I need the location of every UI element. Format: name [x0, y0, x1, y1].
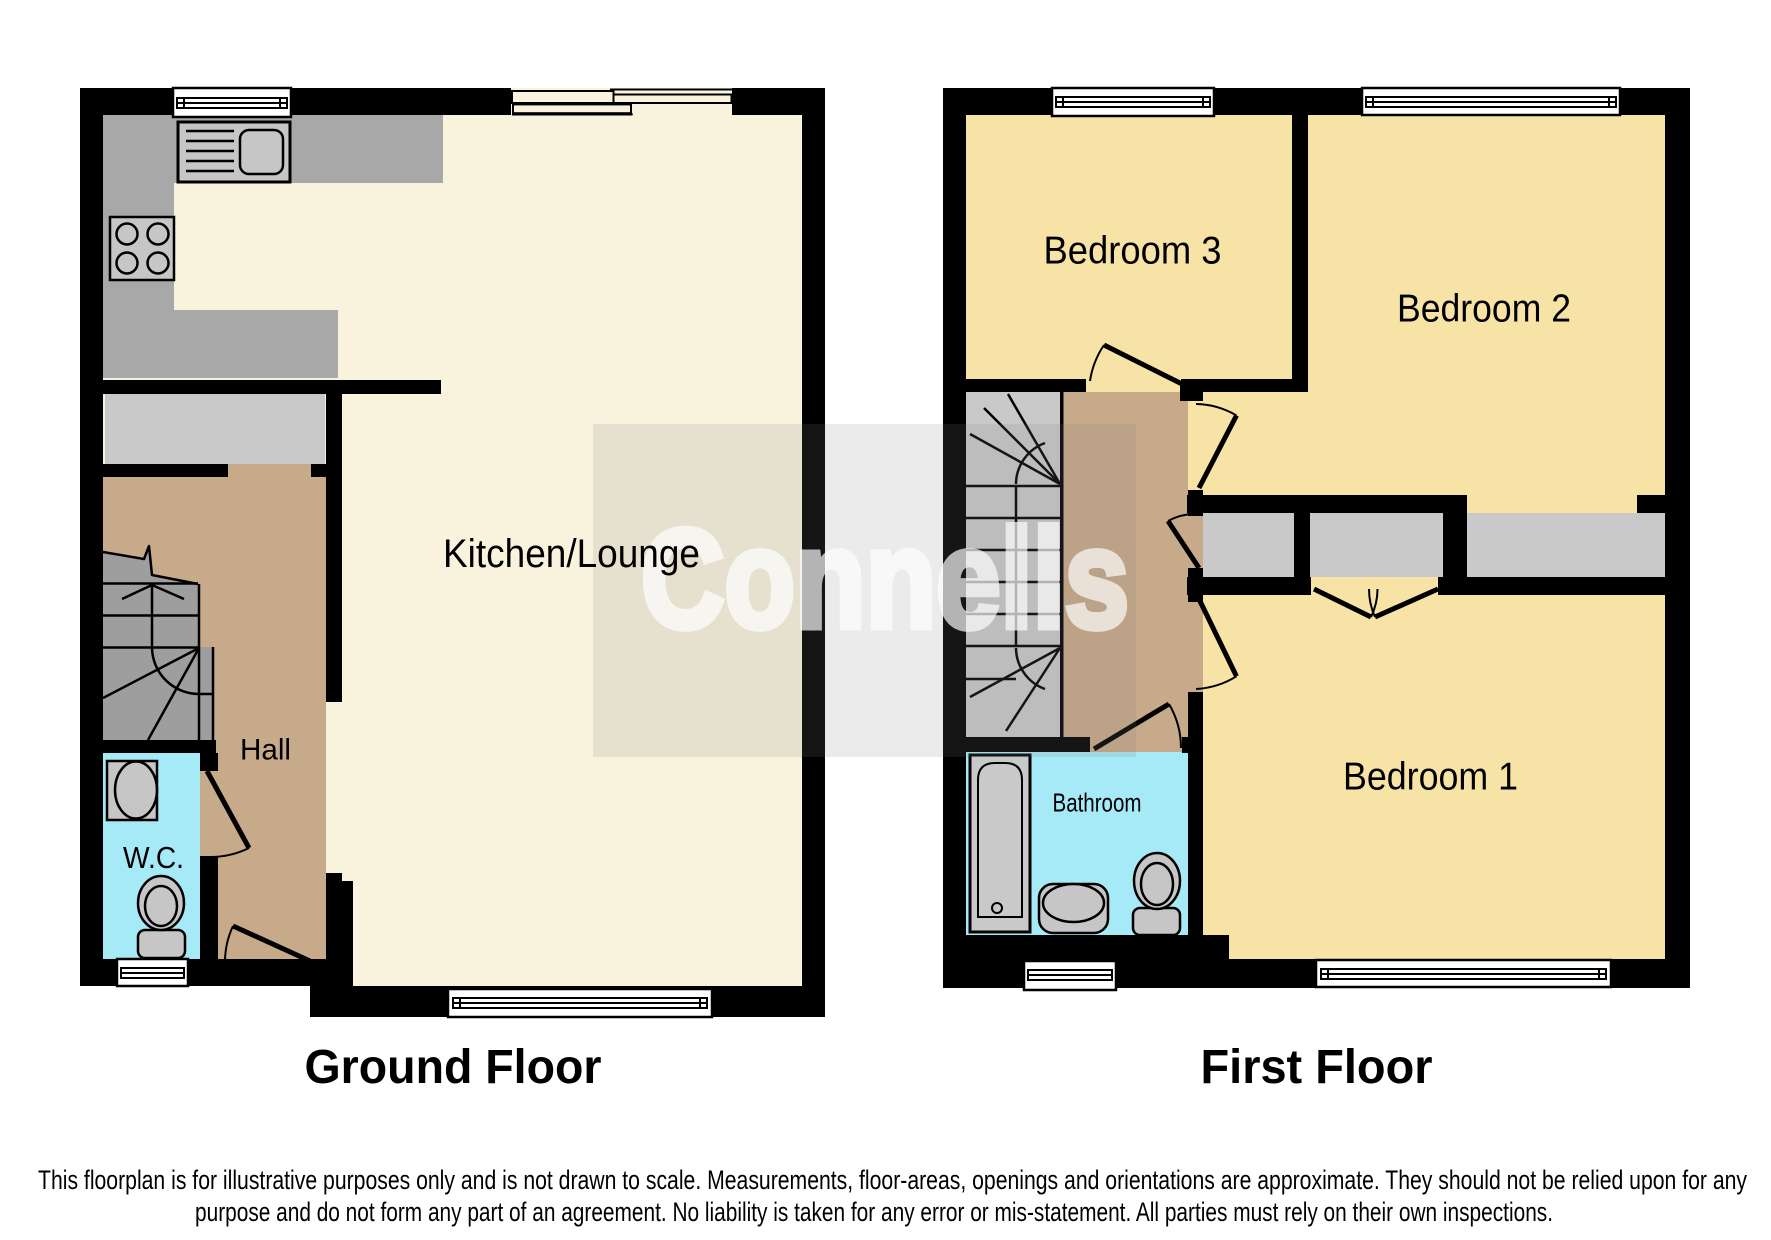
svg-text:Hall: Hall — [240, 734, 291, 767]
svg-text:This floorplan is for illustra: This floorplan is for illustrative purpo… — [38, 1165, 1748, 1195]
svg-text:First Floor: First Floor — [1201, 1041, 1433, 1094]
svg-text:Connells: Connells — [641, 500, 1129, 657]
svg-text:Bedroom 2: Bedroom 2 — [1397, 288, 1571, 331]
svg-text:purpose and do not form any pa: purpose and do not form any part of an a… — [195, 1197, 1553, 1227]
svg-text:Ground Floor: Ground Floor — [305, 1041, 602, 1094]
svg-text:Bathroom: Bathroom — [1053, 788, 1142, 818]
svg-text:Bedroom 1: Bedroom 1 — [1343, 756, 1518, 799]
svg-text:Kitchen/Lounge: Kitchen/Lounge — [443, 532, 700, 576]
svg-text:Bedroom 3: Bedroom 3 — [1044, 229, 1222, 272]
svg-text:W.C.: W.C. — [123, 840, 184, 875]
